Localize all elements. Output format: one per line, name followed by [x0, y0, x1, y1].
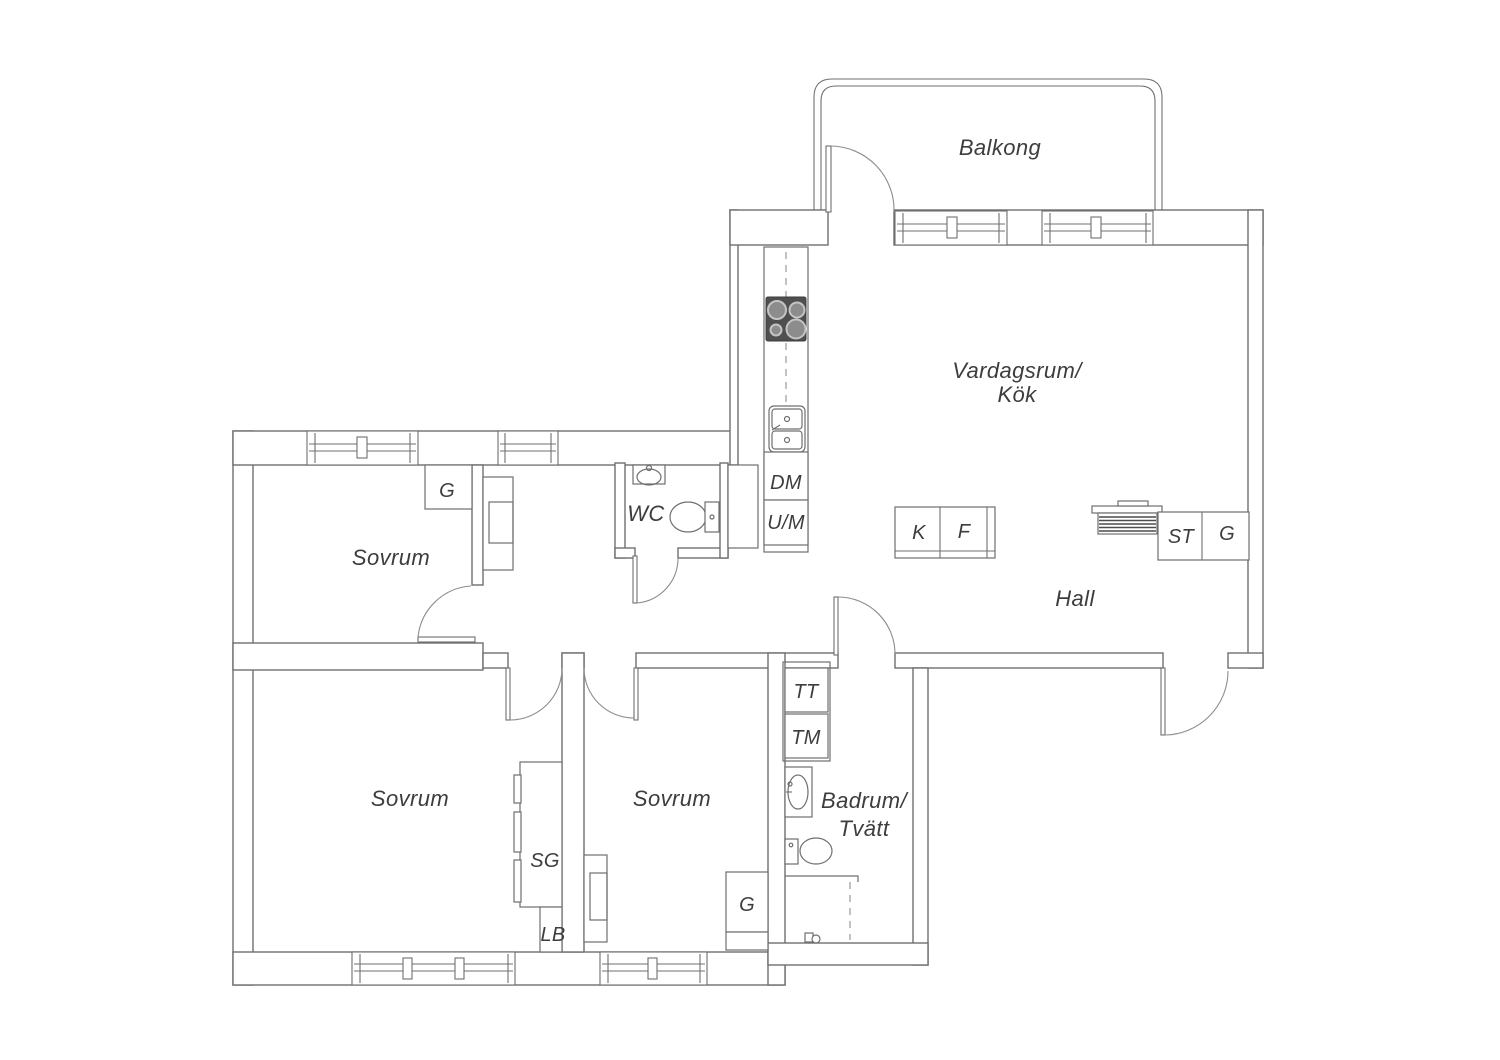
unit-label-dishwasher: DM	[770, 472, 802, 494]
fridge-freezer-unit: K F	[895, 507, 995, 558]
unit-label-freezer: F	[958, 521, 972, 543]
bedroom1: G Sovrum	[352, 465, 513, 570]
wall-segment	[1248, 210, 1263, 668]
door-bedroom3	[584, 668, 638, 720]
wall-segment	[233, 643, 483, 670]
bedroom3: G Sovrum	[584, 786, 768, 950]
wall-segment	[562, 653, 584, 952]
wall-segment	[730, 210, 738, 465]
window	[895, 211, 1007, 245]
room-label-living-line2: Kök	[997, 382, 1037, 407]
corridor-cabinet-icon	[483, 477, 513, 570]
balcony: Balkong	[814, 79, 1162, 212]
wall-segment	[472, 465, 483, 585]
room-label-bedroom1: Sovrum	[352, 545, 430, 570]
unit-label-oven-microwave: U/M	[767, 512, 805, 534]
door-bedroom1	[418, 586, 475, 642]
shower-area	[785, 876, 858, 943]
kitchen-sink-icon	[769, 406, 805, 452]
room-label-wc: WC	[627, 501, 664, 526]
dresser-bedroom3-icon	[584, 855, 607, 942]
door-balcony	[826, 146, 894, 212]
door-entrance	[1161, 668, 1228, 735]
wall-segment	[483, 653, 508, 668]
room-label-bedroom2: Sovrum	[371, 786, 449, 811]
room-label-bathroom-line1: Badrum/	[821, 788, 908, 813]
room-label-bedroom3: Sovrum	[633, 786, 711, 811]
kitchen: DM U/M	[764, 247, 808, 552]
cleaning-wardrobe-unit: ST G	[1158, 512, 1249, 560]
unit-label-fridge: K	[912, 522, 927, 544]
bathroom-sink-icon	[785, 767, 812, 817]
door-wc	[633, 556, 678, 603]
wc-room: WC	[627, 465, 719, 532]
window	[352, 952, 515, 985]
wall-segment	[615, 463, 625, 558]
unit-label-dryer: TT	[793, 681, 820, 703]
unit-label-wardrobe-hall: G	[1219, 523, 1235, 545]
bathroom-toilet-icon	[785, 838, 832, 864]
wall-segment	[730, 210, 828, 245]
wc-toilet-icon	[670, 502, 719, 532]
wall-segment	[768, 943, 928, 965]
wc-sink-icon	[633, 465, 665, 485]
wardrobe-bedroom1: G	[425, 465, 472, 509]
unit-label-linen: LB	[540, 924, 565, 946]
laundry-column: TT TM	[783, 662, 830, 761]
floorplan-page: Balkong	[0, 0, 1500, 1060]
unit-label-wardrobe-bedroom3: G	[739, 894, 755, 916]
room-label-balcony: Balkong	[959, 135, 1042, 160]
window	[307, 431, 418, 465]
door-bathroom	[834, 597, 895, 655]
bedroom2: SG LB Sovrum	[371, 762, 566, 952]
hat-shelf-icon	[1092, 501, 1162, 534]
wall-segment	[1228, 653, 1263, 668]
bathroom: TT TM Badrum/ Tvätt	[783, 662, 908, 943]
linen-cabinet-unit: LB	[540, 907, 566, 952]
wardrobe-bedroom3: G	[726, 872, 768, 950]
wall-segment	[233, 431, 253, 985]
window	[600, 952, 707, 985]
walls	[233, 210, 1263, 985]
floorplan-drawing: Balkong	[0, 0, 1500, 1060]
room-label-hall: Hall	[1055, 586, 1095, 611]
wall-segment	[895, 653, 1163, 668]
unit-label-washer: TM	[791, 727, 821, 749]
wall-segment	[636, 653, 838, 668]
unit-label-wardrobe-bedroom1: G	[439, 480, 455, 502]
shaft	[728, 465, 758, 548]
floor-drain-icon	[805, 933, 820, 943]
room-label-living-line1: Vardagsrum/	[952, 358, 1083, 383]
sliding-wardrobe-unit: SG	[514, 762, 562, 907]
stove-icon	[766, 297, 806, 341]
hall-and-living: Vardagsrum/ Kök K F ST G	[895, 358, 1249, 611]
door-bedroom2	[506, 668, 562, 720]
room-label-bathroom-line2: Tvätt	[839, 816, 890, 841]
window	[498, 431, 558, 465]
wall-segment	[615, 548, 635, 558]
wall-segment	[720, 463, 728, 558]
unit-label-cleaning: ST	[1168, 526, 1196, 548]
unit-label-sliding-wardrobe: SG	[530, 850, 560, 872]
window	[1042, 211, 1153, 245]
wall-segment	[913, 668, 928, 965]
